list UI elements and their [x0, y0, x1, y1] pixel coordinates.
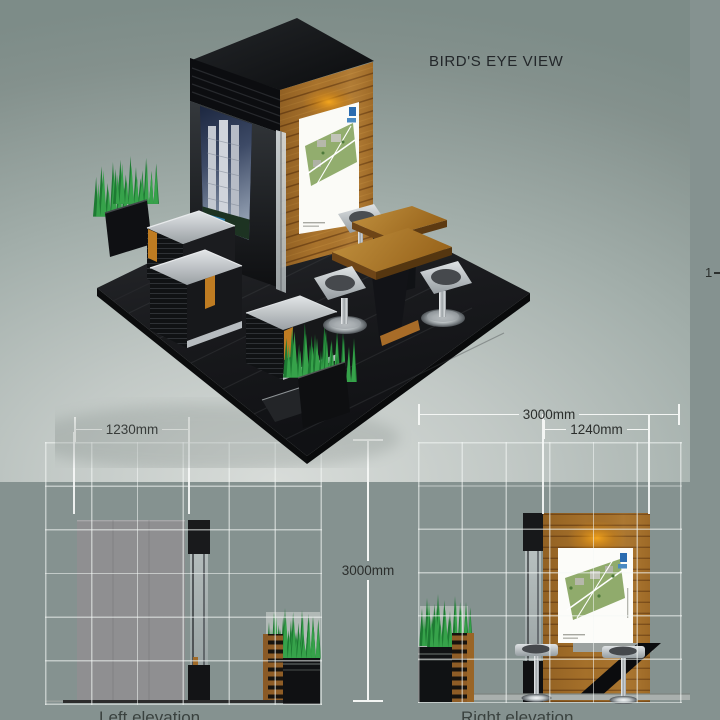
right-elevation-drawing: [415, 438, 705, 720]
dimension-line: [367, 580, 369, 700]
right-elevation: [418, 513, 690, 704]
left-elevation: [45, 520, 321, 704]
planter-unit: [418, 594, 474, 702]
birdseye-3d-render: [55, 8, 545, 468]
planter-box: [418, 647, 452, 702]
left-elevation-drawing: [42, 438, 327, 720]
dimension-wood-wall-width: 1240mm: [543, 420, 650, 439]
back-panel: [77, 520, 185, 702]
view-title: BIRD'S EYE VIEW: [429, 53, 563, 70]
dimension-tick: [678, 404, 680, 425]
dimension-label: 1240mm: [566, 422, 627, 437]
clipped-dimension-text: 1: [705, 265, 720, 280]
design-sheet-page: 1230mm 3000mm 1240mm 3000mm: [0, 0, 720, 720]
poster-logo: [620, 553, 627, 562]
planter-box: [283, 658, 320, 704]
column-base: [188, 665, 210, 702]
dimension-booth-height: 3000mm: [353, 439, 383, 702]
dimension-line: [545, 429, 566, 431]
column-header: [523, 513, 543, 551]
dimension-line: [579, 414, 678, 416]
poster-logo: [349, 107, 356, 116]
column-header: [188, 520, 210, 554]
ground-line: [63, 700, 320, 703]
right-elevation-label: Right elevation: [461, 708, 573, 720]
map-poster-elevation: [558, 548, 633, 643]
dimension-tick: [648, 420, 650, 439]
booth-3d-render: [55, 18, 530, 468]
clipped-dimension-dash: [714, 272, 720, 274]
clipped-dimension-digit: 1: [705, 265, 712, 280]
grass-plant: [113, 156, 159, 204]
dimension-tick: [353, 700, 383, 702]
left-elevation-label: Left elevation: [99, 708, 200, 720]
dimension-line: [627, 429, 648, 431]
dimension-label: 3000mm: [342, 561, 395, 580]
